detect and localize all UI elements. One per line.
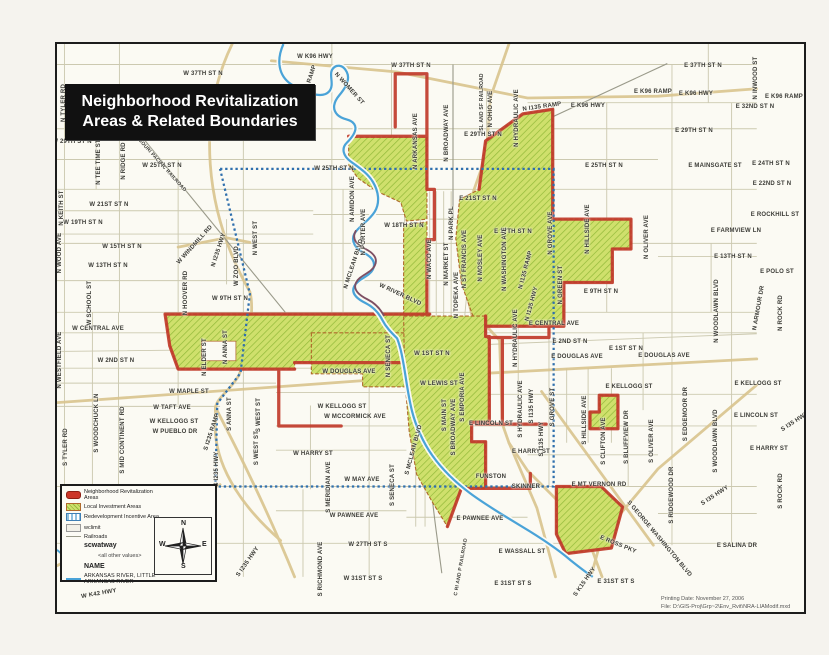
street-label: N WOMER ST (333, 72, 365, 106)
street-label: S I35 HWY (700, 485, 730, 507)
street-label: E LINCOLN ST (469, 421, 513, 427)
street-label: FUNSTON (476, 474, 506, 480)
legend-swatch-nra-icon (66, 491, 81, 499)
street-label: N I135 RAMP (518, 250, 534, 289)
street-label: N I235 HWY (211, 232, 228, 267)
street-label: S GROVE ST (550, 388, 556, 427)
street-label: E PAWNEE AVE (457, 516, 504, 522)
street-label: E KELLOGG ST (734, 381, 781, 387)
street-label: S I135 HWY (539, 421, 545, 456)
legend-item: ARKANSAS RIVER, LITTLE ARKANSAS RIVER (66, 573, 161, 585)
street-label: N WOODLAWN BLVD (714, 279, 720, 343)
street-label: N HYDRAULIC AVE (513, 309, 519, 367)
street-label: E K96 HWY (571, 103, 605, 109)
street-label: W 19TH ST N (63, 220, 103, 226)
street-label: E 31ST ST S (494, 581, 531, 587)
street-label: E ROCKHILL ST (751, 212, 800, 218)
street-label: E DOUGLAS AVE (638, 353, 690, 359)
street-label: E CENTRAL AVE (529, 321, 579, 327)
legend-swatch-rail-icon (66, 536, 81, 537)
street-label: E 22ND ST N (753, 181, 792, 187)
street-label: N WESTFIELD AVE (57, 332, 63, 389)
street-label: N HOOVER RD (183, 271, 189, 316)
map-frame: W 37TH ST NW 37TH ST NE 37TH ST NW 29TH … (55, 42, 806, 614)
street-label: S K15 HWY (573, 566, 598, 597)
street-label: S I235 HWY (236, 546, 261, 578)
street-label: W 15TH ST N (102, 244, 142, 250)
street-label: W 27TH ST S (348, 542, 387, 548)
street-label: S ANNA ST (227, 397, 233, 431)
street-label: S RICHMOND AVE (318, 542, 324, 597)
legend-item-label: scwatway (84, 542, 117, 549)
street-label: W WINDMILL RD (176, 224, 214, 265)
street-label: N WASHINGTON AVE (502, 227, 508, 291)
print-info: Printing Date: November 27, 2006 File: D… (661, 595, 790, 612)
street-label: W ZOO BLVD (234, 246, 240, 286)
street-label: W KELLOGG ST (318, 404, 367, 410)
street-label: N INWOOD ST (753, 57, 759, 100)
legend-item: Neighborhood Revitalization Areas (66, 489, 161, 501)
street-label: E POLO ST (760, 269, 794, 275)
legend-item: wclimit (66, 524, 161, 532)
street-label: N ARMOUR DR (752, 285, 766, 331)
legend-item-label: Railroads (84, 534, 107, 540)
street-label: W KELLOGG ST (150, 419, 199, 425)
street-label: S MID CONTINENT RD (120, 406, 126, 473)
street-label: N MARKET ST (444, 242, 450, 285)
street-label: S WOODLAWN BLVD (713, 409, 719, 472)
street-label: E WASSALL ST (499, 549, 546, 555)
street-label: E ROSS PKY (599, 535, 637, 555)
street-label: W 25TH ST N (314, 166, 354, 172)
street-label: W 31ST ST S (344, 576, 383, 582)
scanned-map-page: W 37TH ST NW 37TH ST NE 37TH ST NW 29TH … (0, 0, 829, 655)
street-label: S OLIVER AVE (649, 419, 655, 463)
street-label: S WEST ST (254, 431, 260, 465)
street-label: S MCLEAN BLVD (404, 424, 423, 475)
legend-item: Redevelopment Incentive Area (66, 513, 161, 521)
street-label: E K96 RAMP (765, 94, 803, 100)
street-label: N PARK PL (449, 206, 455, 240)
street-label: W 37TH ST N (183, 71, 223, 77)
street-label: S I235 RAMP (203, 413, 221, 452)
street-label: E DOUGLAS AVE (551, 354, 603, 360)
street-label: W MAPLE ST (169, 389, 209, 395)
legend-swatch-lia-icon (66, 503, 81, 511)
street-label: E SALINA DR (717, 543, 757, 549)
legend-item: <all other values> (66, 552, 161, 560)
legend-swatch-limit-icon (66, 524, 81, 532)
street-label: W 2ND ST N (98, 358, 135, 364)
street-label: N RIDGE RD (121, 142, 127, 179)
street-label: S SENECA ST (390, 464, 396, 506)
street-label: E 25TH ST N (585, 163, 623, 169)
street-label: S I135 HWY (529, 388, 535, 423)
street-label: N ANNA ST (223, 330, 229, 364)
street-label: SL AND SF RAILROAD (479, 73, 485, 131)
legend-item-label: NAME (84, 563, 105, 570)
map-title-line2: Areas & Related Boundaries (82, 112, 297, 132)
legend-item-label: ARKANSAS RIVER, LITTLE ARKANSAS RIVER (84, 573, 161, 585)
street-label: E 24TH ST N (752, 161, 790, 167)
street-label: E FARMVIEW LN (711, 228, 761, 234)
street-label: SKINNER (512, 484, 540, 490)
street-label: W MAY AVE (344, 477, 379, 483)
street-label: W 13TH ST N (88, 263, 128, 269)
street-label: N OHIO AVE (488, 91, 494, 128)
legend-items: Neighborhood Revitalization AreasLocal I… (66, 489, 161, 587)
street-label: S HILLSIDE AVE (582, 395, 588, 444)
street-label: N HILLSIDE AVE (585, 204, 591, 253)
street-label: N WACO AVE (427, 239, 433, 279)
street-label: S GEORGE WASHINGTON BLVD (625, 500, 692, 578)
street-label: W TAFT AVE (153, 405, 191, 411)
street-label: E 31ST ST S (597, 579, 634, 585)
compass-star-icon (155, 518, 211, 574)
legend-swatch-none-icon (66, 542, 81, 550)
street-label: W 37TH ST N (391, 63, 431, 69)
street-label: W 9TH ST N (212, 296, 248, 302)
compass-rose: N S E W (154, 517, 212, 575)
street-label: C RI AND P RAILROAD (453, 538, 469, 596)
street-label: W CENTRAL AVE (72, 326, 124, 332)
street-label: N SENECA ST (386, 335, 392, 377)
street-label: N WOOD AVE (57, 233, 63, 274)
legend-item: Railroads (66, 534, 161, 540)
street-label: N ELDER ST (202, 338, 208, 376)
street-label: E 29TH ST N (464, 132, 502, 138)
street-label: N I135 HWY (525, 286, 540, 322)
street-label: E LINCOLN ST (734, 413, 778, 419)
street-label: N KEITH ST (59, 190, 65, 225)
street-label: W SCHOOL ST (87, 281, 93, 325)
legend-item: NAME (66, 562, 161, 570)
print-date: Printing Date: November 27, 2006 (661, 595, 790, 603)
street-label: S CLIFTON AVE (601, 417, 607, 465)
street-label: S WEST ST (256, 398, 262, 432)
street-label: E K96 RAMP (634, 89, 672, 95)
legend-swatch-none-icon (66, 552, 81, 560)
street-label: E 32ND ST N (736, 104, 775, 110)
street-label: E 13TH ST N (714, 254, 752, 260)
street-label: E 9TH ST N (584, 289, 618, 295)
street-label: N WEST ST (253, 221, 259, 255)
street-label: W 18TH ST N (384, 223, 424, 229)
street-label: E 21ST ST N (459, 196, 497, 202)
legend-item: scwatway (66, 542, 161, 550)
street-label: S I235 HWY (214, 451, 220, 486)
street-label: N I135 RAMP (522, 101, 562, 112)
street-label: N MOSLEY AVE (478, 235, 484, 282)
street-label: S I35 HWY (780, 411, 806, 433)
legend-item-label: Neighborhood Revitalization Areas (84, 489, 161, 501)
street-label: E KELLOGG ST (605, 384, 652, 390)
legend-item: Local Investment Areas (66, 503, 161, 511)
street-label: W HARRY ST (293, 451, 333, 457)
street-label: W PUEBLO DR (153, 429, 198, 435)
street-label: E 2ND ST N (552, 339, 587, 345)
street-label: W DOUGLAS AVE (322, 369, 375, 375)
street-label: N MCLEAN BLVD (343, 238, 365, 289)
legend-item-label: Redevelopment Incentive Area (84, 514, 159, 520)
street-label: N OLIVER AVE (644, 215, 650, 259)
street-label: S BROADWAY AVE (451, 399, 457, 456)
street-label: N HYDRAULIC AVE (514, 89, 520, 147)
street-label: W LEWIS ST (420, 381, 458, 387)
street-label: N ROCK RD (778, 295, 784, 331)
street-label: N ARKANSAS AVE (413, 113, 419, 169)
legend-item-label: Local Investment Areas (84, 504, 141, 510)
street-label: S BLUFFVIEW DR (624, 410, 630, 464)
street-label: W K42 HWY (81, 588, 117, 600)
street-label: S TYLER RD (63, 428, 69, 466)
street-label: W PAWNEE AVE (330, 513, 379, 519)
street-label: E HARRY ST (750, 446, 788, 452)
street-label: S WOODCHUCK LN (94, 393, 100, 452)
map-title: Neighborhood Revitalization Areas & Rela… (65, 84, 315, 140)
legend-swatch-river-icon (66, 578, 81, 580)
legend-item-label: wclimit (84, 525, 101, 531)
legend-item-label: <all other values> (84, 553, 141, 559)
street-label: E 37TH ST N (684, 63, 722, 69)
street-label: N TEE TIME ST (96, 139, 102, 185)
legend-swatch-none-icon (66, 562, 81, 570)
street-label: N ST FRANCIS AVE (462, 230, 468, 289)
street-label: E MT VERNON RD (572, 482, 627, 488)
legend-swatch-ria-icon (66, 513, 81, 521)
street-label: N GROVE AVE (548, 211, 554, 254)
street-label: N GREEN ST (558, 266, 564, 305)
street-label: S EDGEMOOR DR (683, 387, 689, 441)
map-title-line1: Neighborhood Revitalization (82, 92, 299, 112)
street-label: N BROADWAY AVE (444, 104, 450, 161)
street-label: W 1ST ST N (414, 351, 450, 357)
street-label: S MERIDIAN AVE (326, 461, 332, 512)
street-label: W RIVER BLVD (378, 283, 422, 308)
street-label: E K96 HWY (679, 91, 713, 97)
street-label: E MAINSGATE ST (688, 163, 741, 169)
street-label: E 29TH ST N (675, 128, 713, 134)
street-label: S RIDGEWOOD DR (669, 466, 675, 523)
street-label: N AMIDON AVE (350, 176, 356, 222)
street-label: N TOPEKA AVE (454, 272, 460, 318)
street-label: S HYDRAULIC AVE (518, 380, 524, 437)
street-label: S MAIN ST (442, 399, 448, 431)
street-label: S EMPORIA AVE (460, 372, 466, 421)
street-label: E 1ST ST N (609, 346, 643, 352)
street-label: S ROCK RD (778, 473, 784, 508)
street-label: W 21ST ST N (89, 202, 128, 208)
print-file-path: File: D:\GIS-Proj\Grp~2\Env_Rvit\NRA-LIA… (661, 603, 790, 611)
street-label: W K96 HWY (297, 54, 333, 60)
legend: Neighborhood Revitalization AreasLocal I… (60, 484, 217, 582)
street-label: E 17TH ST N (494, 229, 532, 235)
street-label: W MCCORMICK AVE (324, 414, 386, 420)
